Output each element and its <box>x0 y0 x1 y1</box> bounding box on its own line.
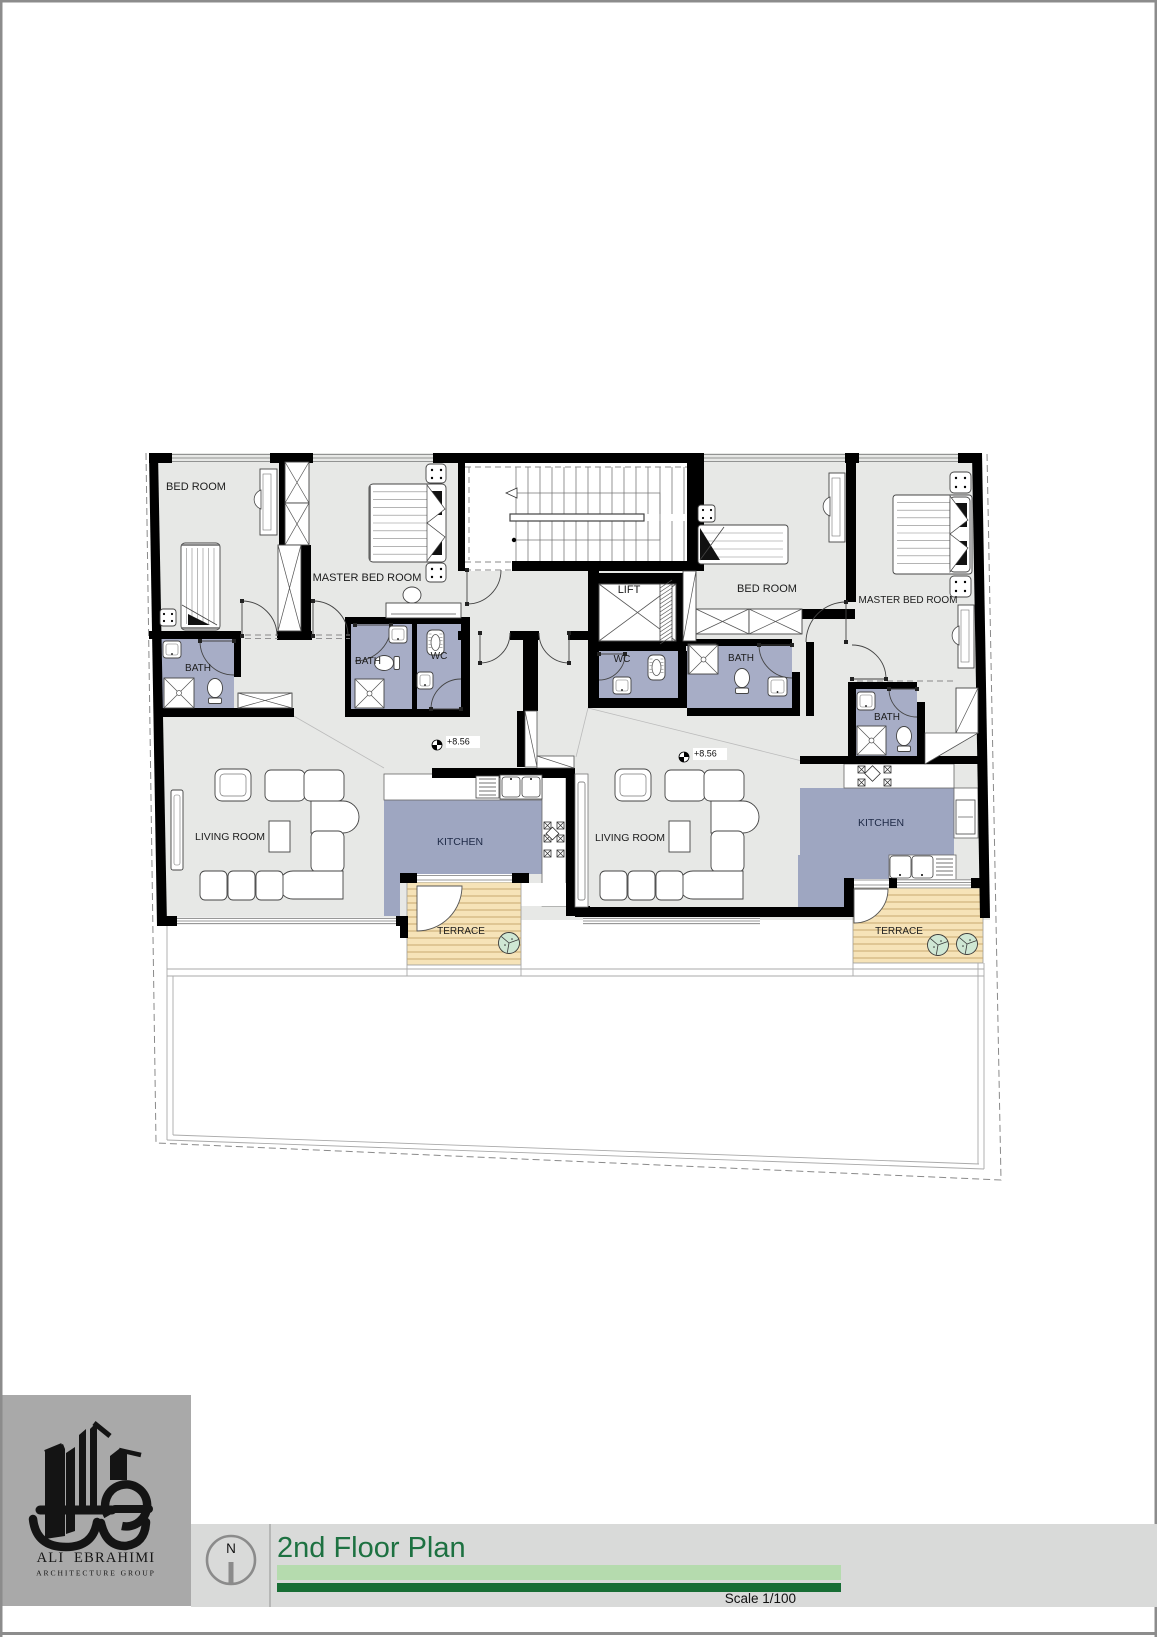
svg-text:MASTER BED ROOM: MASTER BED ROOM <box>313 572 422 584</box>
svg-text:WC: WC <box>614 654 631 665</box>
svg-text:BATH: BATH <box>355 656 381 667</box>
svg-text:BED ROOM: BED ROOM <box>737 583 797 595</box>
svg-text:BATH: BATH <box>728 653 754 664</box>
svg-text:LIVING ROOM: LIVING ROOM <box>595 832 665 844</box>
svg-text:MASTER BED ROOM: MASTER BED ROOM <box>859 595 958 606</box>
svg-text:BED ROOM: BED ROOM <box>166 481 226 493</box>
svg-text:2nd Floor Plan: 2nd Floor Plan <box>277 1532 466 1564</box>
svg-text:BATH: BATH <box>874 712 900 723</box>
svg-text:BATH: BATH <box>185 663 211 674</box>
svg-text:KITCHEN: KITCHEN <box>858 817 904 829</box>
svg-text:KITCHEN: KITCHEN <box>437 836 483 848</box>
svg-text:+8.56: +8.56 <box>447 737 470 747</box>
svg-text:WC: WC <box>431 651 448 662</box>
svg-text:TERRACE: TERRACE <box>875 926 923 937</box>
svg-text:N: N <box>226 1541 236 1556</box>
svg-text:LIVING ROOM: LIVING ROOM <box>195 831 265 843</box>
svg-text:Scale 1/100: Scale 1/100 <box>725 1591 796 1606</box>
svg-text:TERRACE: TERRACE <box>437 926 485 937</box>
svg-text:+8.56: +8.56 <box>694 749 717 759</box>
svg-text:LIFT: LIFT <box>618 584 641 596</box>
svg-text:ARCHITECTURE GROUP: ARCHITECTURE GROUP <box>36 1569 156 1578</box>
svg-text:ALI EBRAHIMI: ALI EBRAHIMI <box>37 1550 156 1566</box>
